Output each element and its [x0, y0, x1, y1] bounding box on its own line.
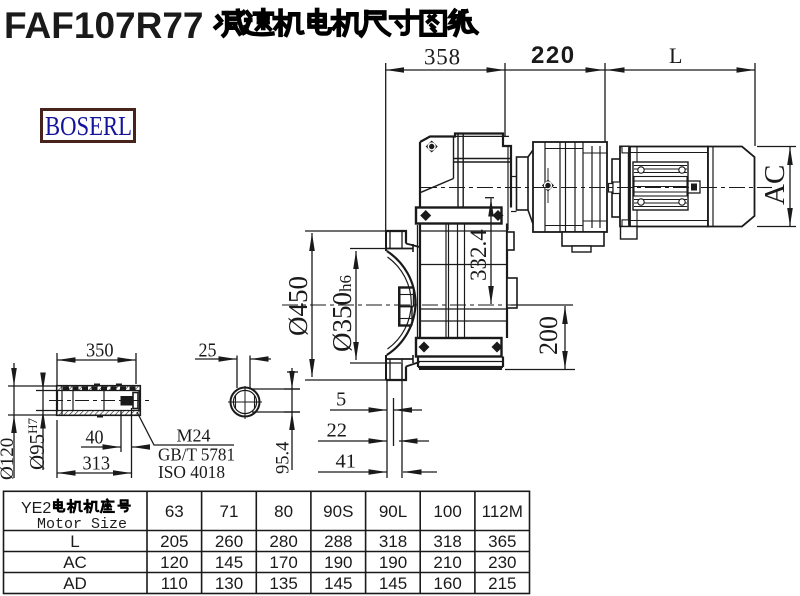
svg-text:AC: AC — [63, 553, 87, 572]
svg-text:112M: 112M — [482, 502, 523, 521]
svg-text:FAF107R77: FAF107R77 — [4, 5, 204, 46]
svg-text:332.4: 332.4 — [466, 229, 491, 281]
svg-text:120: 120 — [160, 553, 188, 572]
svg-text:M24: M24 — [177, 426, 211, 446]
svg-text:215: 215 — [488, 574, 516, 593]
svg-text:Motor Size: Motor Size — [37, 516, 127, 533]
svg-text:41: 41 — [336, 451, 357, 473]
svg-text:230: 230 — [488, 553, 516, 572]
svg-text:170: 170 — [269, 553, 297, 572]
svg-text:318: 318 — [433, 532, 461, 551]
svg-text:AC: AC — [759, 165, 791, 205]
svg-text:358: 358 — [424, 45, 461, 70]
svg-text:160: 160 — [433, 574, 461, 593]
svg-text:100: 100 — [433, 502, 461, 521]
svg-text:90L: 90L — [379, 502, 407, 521]
svg-text:BOSERL: BOSERL — [45, 111, 132, 141]
svg-text:ISO 4018: ISO 4018 — [158, 462, 225, 482]
svg-text:22: 22 — [327, 420, 348, 442]
svg-text:288: 288 — [324, 532, 352, 551]
svg-text:80: 80 — [274, 502, 293, 521]
svg-text:200: 200 — [534, 316, 563, 355]
svg-text:365: 365 — [488, 532, 516, 551]
svg-text:L: L — [669, 43, 682, 68]
svg-text:145: 145 — [379, 574, 407, 593]
svg-text:5: 5 — [336, 389, 346, 411]
svg-text:25: 25 — [199, 340, 217, 362]
svg-text:L: L — [70, 532, 79, 551]
svg-text:145: 145 — [324, 574, 352, 593]
svg-text:190: 190 — [379, 553, 407, 572]
svg-text:260: 260 — [215, 532, 243, 551]
svg-text:220: 220 — [531, 42, 576, 69]
svg-text:145: 145 — [215, 553, 243, 572]
svg-text:YE2: YE2 — [21, 500, 51, 517]
svg-text:350: 350 — [86, 340, 114, 362]
svg-text:Ø120: Ø120 — [0, 438, 18, 480]
svg-text:95.4: 95.4 — [274, 442, 294, 474]
svg-text:71: 71 — [220, 502, 239, 521]
svg-text:40: 40 — [86, 427, 104, 449]
svg-text:210: 210 — [433, 553, 461, 572]
svg-text:190: 190 — [324, 553, 352, 572]
svg-text:AD: AD — [63, 574, 87, 593]
svg-text:135: 135 — [269, 574, 297, 593]
svg-text:280: 280 — [269, 532, 297, 551]
svg-text:90S: 90S — [323, 502, 353, 521]
svg-text:130: 130 — [215, 574, 243, 593]
svg-text:63: 63 — [165, 502, 184, 521]
svg-text:110: 110 — [161, 574, 188, 593]
svg-text:318: 318 — [379, 532, 407, 551]
svg-text:205: 205 — [160, 532, 188, 551]
svg-text:313: 313 — [83, 453, 111, 475]
svg-text:Ø450: Ø450 — [283, 276, 313, 336]
